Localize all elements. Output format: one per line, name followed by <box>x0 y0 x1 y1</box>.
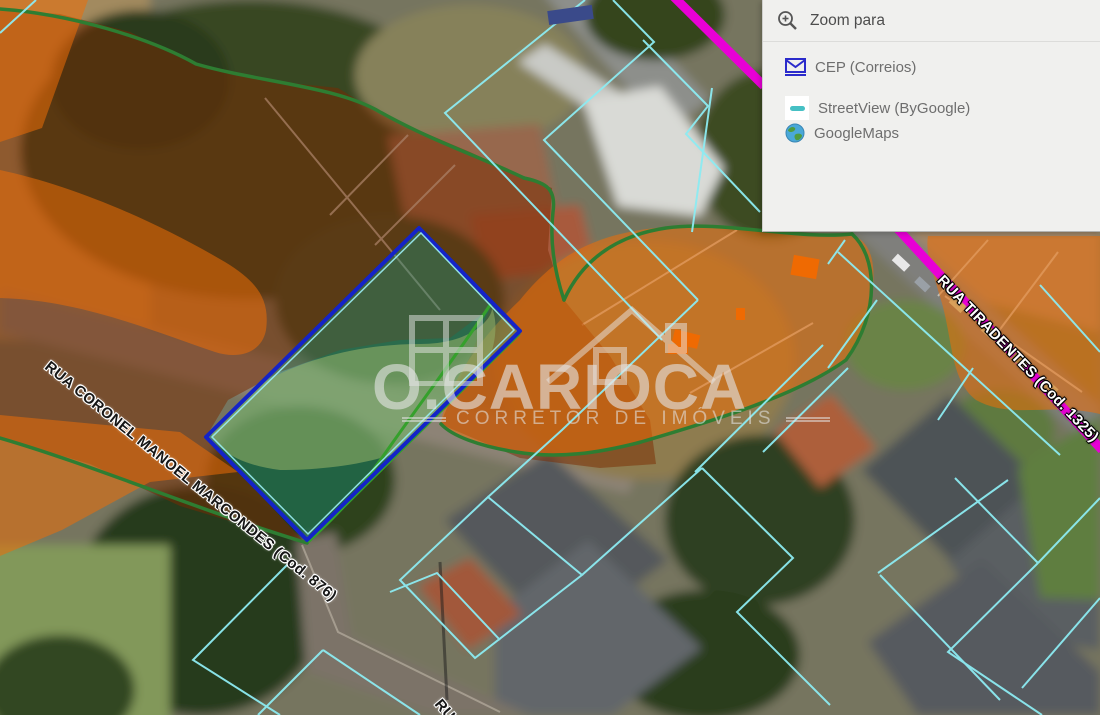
search-input[interactable]: Zoom para <box>763 0 1100 42</box>
result-label: GoogleMaps <box>814 125 899 142</box>
streetview-dash-icon <box>785 96 809 120</box>
zoom-in-magnifier-icon <box>777 10 798 31</box>
envelope-icon <box>785 58 806 76</box>
result-cep-correios[interactable]: CEP (Correios) <box>785 58 1100 76</box>
globe-icon <box>785 123 805 143</box>
result-streetview[interactable]: StreetView (ByGoogle) <box>785 96 1100 120</box>
result-label: StreetView (ByGoogle) <box>818 100 970 117</box>
map-viewport[interactable]: RUA CORONEL MANOEL MARCONDES (Cod. 876) … <box>0 0 1100 715</box>
search-placeholder: Zoom para <box>810 12 885 30</box>
zoom-search-panel: Zoom para CEP (Correios) StreetView (ByG… <box>762 0 1100 232</box>
result-googlemaps[interactable]: GoogleMaps <box>785 123 1100 143</box>
result-label: CEP (Correios) <box>815 59 916 76</box>
